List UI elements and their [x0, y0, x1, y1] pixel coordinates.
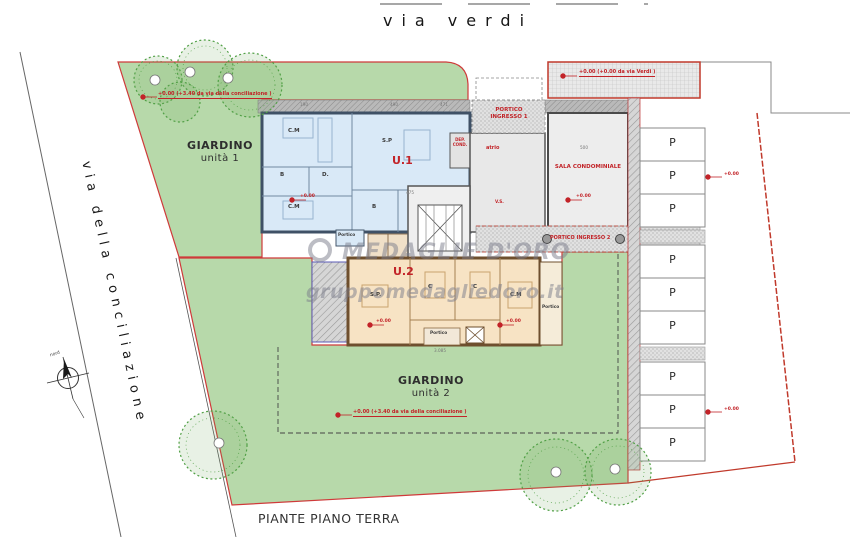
room-label-c2: C — [473, 284, 477, 290]
room-label-d: D. — [322, 172, 329, 178]
parking-stall-label: P — [640, 371, 705, 384]
parking-stall-label: P — [640, 287, 705, 300]
parking-boundary-hatch — [628, 98, 640, 470]
unit2-portico-right — [540, 262, 562, 345]
tree — [160, 82, 200, 122]
portico-ingresso1-dashed-ext — [476, 78, 542, 100]
atrio-label: atrio — [486, 146, 499, 152]
sala-condominiale-label: SALA CONDOMINIALE — [550, 164, 626, 171]
garden1-unit: unità 1 — [170, 153, 270, 165]
room-label-sp2: S.P. — [370, 292, 381, 298]
right-property-line — [757, 113, 795, 462]
room-label-portico-u1: Portico — [338, 234, 355, 239]
vano-scala-label: V.S. — [495, 200, 504, 205]
north-wall-band-right — [545, 100, 630, 113]
room-label-c1: C — [428, 284, 432, 290]
garden2-title: GIARDINO unità 2 — [391, 375, 471, 399]
room-label-cm1: C.M — [288, 128, 300, 134]
dep-cond-label: DEP. COND. — [448, 138, 472, 147]
room-label-b2: B — [372, 204, 376, 210]
garden1-name: GIARDINO — [187, 139, 253, 152]
service-rooms — [368, 234, 408, 258]
parking-stall-label: P — [640, 170, 705, 183]
parking-stall-label: P — [640, 254, 705, 267]
parking-stall-label: P — [640, 203, 705, 216]
neighbor-boundary-lines — [700, 62, 850, 113]
garden1-elevation-note: +0.00 (+3.40 da via della conciliazione … — [158, 92, 272, 99]
garden2-elevation-note: +0.00 (+3.40 da via della conciliazione … — [353, 410, 467, 417]
parking-stall-label: P — [640, 437, 705, 450]
parking-divider — [640, 230, 705, 243]
elevation-zero: +0.00 — [724, 172, 739, 177]
garden2-name: GIARDINO — [398, 374, 464, 387]
room-label-cm2: C.M — [288, 204, 300, 210]
unit1-id-label: U.1 — [392, 155, 413, 168]
sala-condominiale-room — [548, 113, 628, 235]
parking-divider — [640, 347, 705, 360]
street-label-via-verdi: via verdi — [383, 12, 533, 30]
unit2-id-label: U.2 — [393, 266, 414, 279]
elevation-zero: +0.00 — [376, 319, 391, 324]
driveway-ramp — [548, 62, 700, 98]
room-label-b1: B — [280, 172, 284, 178]
unit2-plan — [348, 258, 562, 345]
dimension-label: 475 — [406, 191, 414, 196]
dimension-label: 500 — [580, 146, 588, 151]
tree — [218, 53, 282, 117]
dimension-label: 3.085 — [434, 349, 446, 354]
sheet-title: PIANTE PIANO TERRA — [258, 512, 400, 526]
dimension-label: 471 — [440, 103, 448, 108]
room-label-cm-u2: C.M — [510, 292, 522, 298]
dimension-label: 490 — [390, 103, 398, 108]
room-label-sp1: S.P — [382, 138, 392, 144]
terrace-hatched — [312, 262, 348, 342]
compass-rose — [47, 357, 89, 418]
elevation-zero: +0.00 — [724, 407, 739, 412]
bottom-property-line — [628, 462, 795, 483]
north-wall-band — [258, 100, 470, 113]
floor-plan-canvas: via verdi via della conciliazione GIARDI… — [0, 0, 850, 537]
via-verdi-elevation-note: +0.00 (+0.00 da via Verdi ) — [579, 70, 655, 77]
watermark-logo — [308, 238, 332, 262]
elevation-zero: +0.00 — [300, 194, 315, 199]
dimension-label: 190 — [300, 103, 308, 108]
tree — [179, 411, 247, 479]
parking-stall-label: P — [640, 137, 705, 150]
garden1-title: GIARDINO unità 1 — [170, 140, 270, 164]
stair-core — [408, 186, 470, 258]
portico-ingresso1-label: PORTICO INGRESSO 1 — [481, 107, 537, 121]
elevation-zero: +0.00 — [576, 194, 591, 199]
parking-stall-label: P — [640, 404, 705, 417]
site-plan-drawing — [0, 0, 850, 537]
parking-stall-label: P — [640, 320, 705, 333]
garden2-unit: unità 2 — [391, 388, 471, 400]
elevation-zero: +0.00 — [506, 319, 521, 324]
portico-ingresso2-label: PORTICO INGRESSO 2 — [550, 235, 610, 242]
atrio-room — [470, 133, 545, 232]
room-label-portico-right: Portico — [542, 306, 559, 311]
room-label-portico-bottom: Portico — [430, 332, 447, 337]
